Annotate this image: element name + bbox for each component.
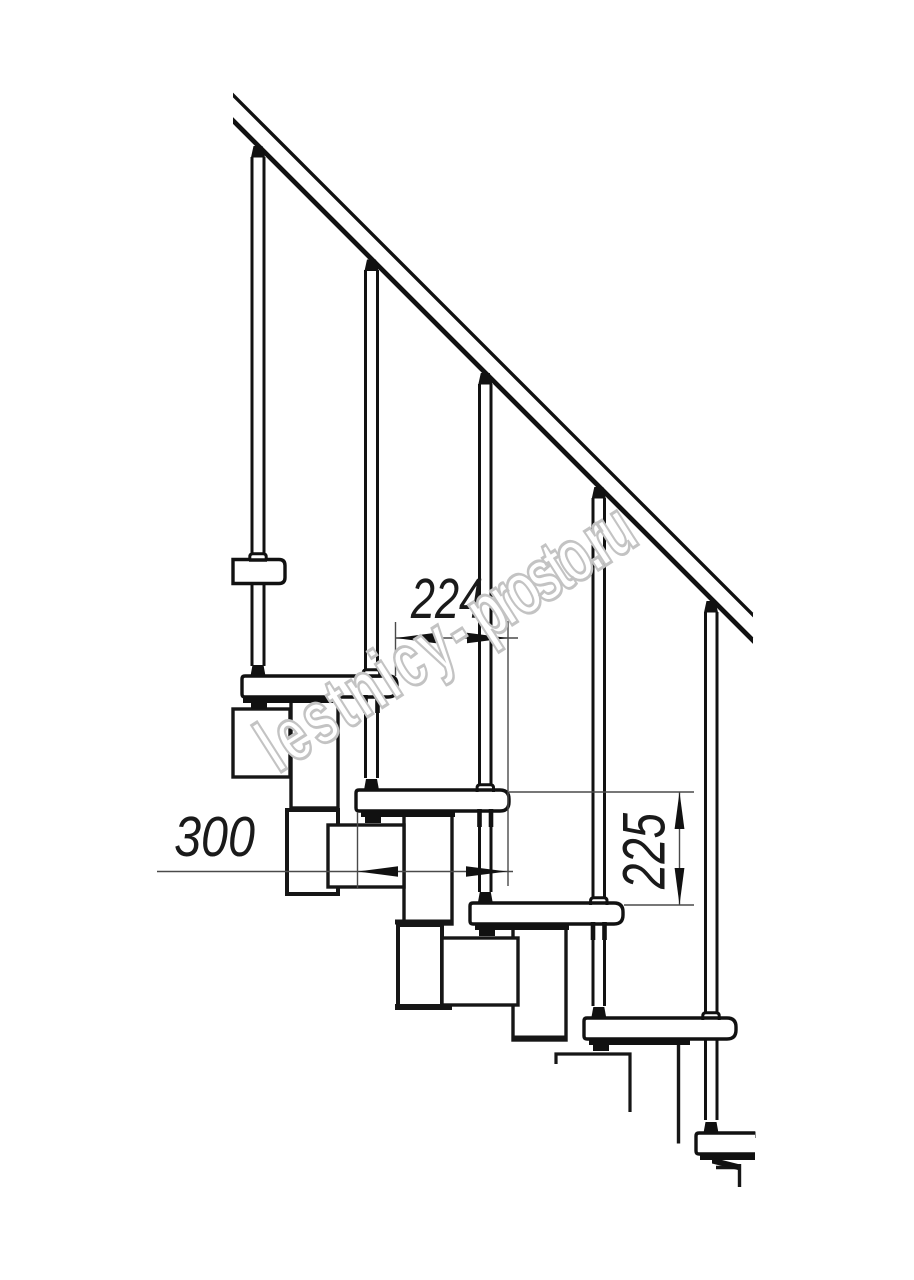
svg-text:225: 225 [612, 813, 678, 890]
svg-text:300: 300 [174, 805, 255, 869]
